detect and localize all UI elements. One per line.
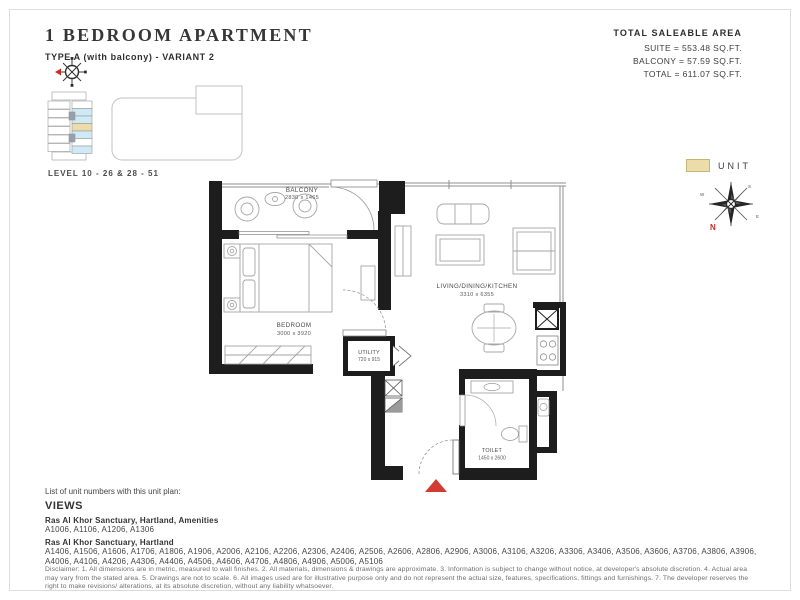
page-title: 1 BEDROOM APARTMENT	[45, 25, 313, 46]
area-heading: TOTAL SALEABLE AREA	[613, 28, 742, 38]
toilet-dims: 1450 x 2600	[478, 456, 506, 462]
living-dims: 3310 x 6355	[460, 292, 494, 298]
compass-west-label: W	[700, 192, 705, 197]
unit-color-swatch	[686, 159, 710, 172]
views-heading: VIEWS	[45, 500, 83, 512]
service-shafts	[385, 380, 402, 412]
bedroom-dims: 3000 x 3920	[277, 331, 311, 337]
balcony-label: BALCONY	[286, 187, 318, 194]
area-summary: TOTAL SALEABLE AREA SUITE = 553.48 SQ.FT…	[613, 28, 742, 81]
floor-plan: UTILITY 720 x 915 TOILET 1450 x 2600	[209, 178, 571, 492]
kitchen-fixtures	[536, 309, 558, 365]
key-plan-units	[48, 92, 92, 160]
entrance-marker-icon	[425, 479, 447, 492]
utility-dims: 720 x 915	[358, 357, 380, 363]
utility-room: UTILITY 720 x 915	[348, 341, 411, 371]
entrance-door	[419, 440, 459, 474]
compass-large-icon: N S E W	[698, 178, 764, 236]
key-plan	[46, 84, 256, 176]
suite-area: SUITE = 553.48 SQ.FT.	[613, 42, 742, 55]
walls	[209, 181, 566, 480]
disclaimer-text: Disclaimer: 1. All dimensions are in met…	[45, 566, 761, 592]
compass-south-label: S	[748, 184, 751, 189]
bedroom-label: BEDROOM	[277, 322, 312, 329]
level-label: LEVEL 10 - 26 & 28 - 51	[48, 169, 159, 178]
utility-label: UTILITY	[358, 350, 380, 356]
key-plan-highlighted-unit	[72, 124, 92, 132]
unit-list-intro: List of unit numbers with this unit plan…	[45, 487, 181, 496]
total-area: TOTAL = 611.07 SQ.FT.	[613, 68, 742, 81]
unit-legend: UNIT	[686, 159, 751, 172]
compass-north-label: N	[710, 223, 716, 232]
living-furniture	[395, 204, 555, 352]
unit-group-units: A1006, A1106, A1206, A1306	[45, 525, 761, 535]
unit-legend-label: UNIT	[718, 161, 751, 171]
unit-group-title: Ras Al Khor Sanctuary, Hartland, Ameniti…	[45, 516, 218, 525]
living-label: LIVING/DINING/KITCHEN	[437, 283, 518, 290]
balcony-dims: 2830 x 1465	[285, 195, 319, 201]
sliding-window	[239, 232, 347, 239]
balcony-door	[331, 180, 377, 230]
compass-east-label: E	[756, 214, 759, 219]
balcony-area: BALCONY = 57.59 SQ.FT.	[613, 55, 742, 68]
toilet-label: TOILET	[482, 448, 502, 454]
unit-group-title: Ras Al Khor Sanctuary, Hartland	[45, 538, 174, 547]
unit-group-units: A1406, A1506, A1606, A1706, A1806, A1906…	[45, 547, 761, 566]
